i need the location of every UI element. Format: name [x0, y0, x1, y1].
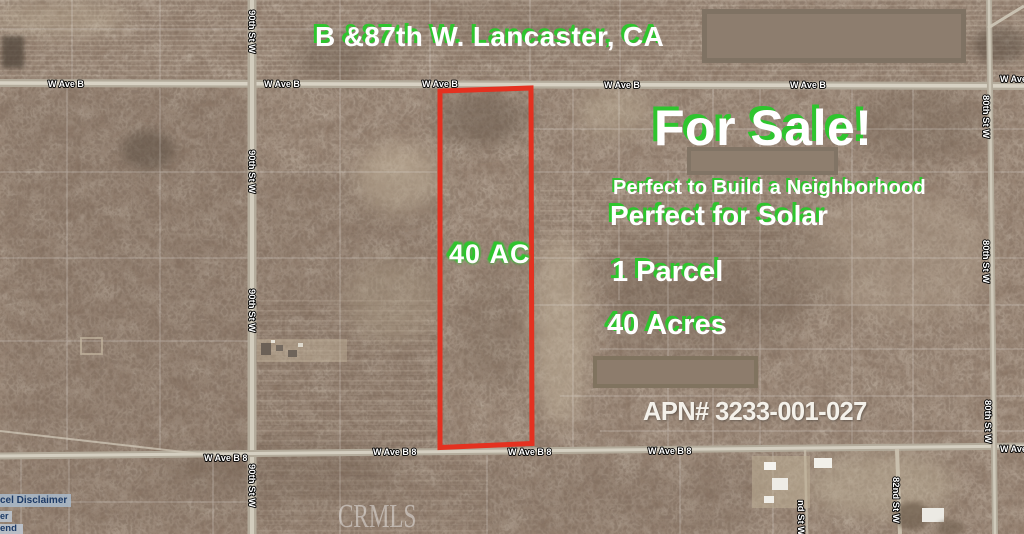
svg-text:90th St W: 90th St W — [246, 289, 257, 332]
svg-text:W Ave B: W Ave B — [48, 79, 84, 89]
svg-text:W Ave B: W Ave B — [604, 80, 640, 90]
svg-text:W Ave: W Ave — [1000, 74, 1024, 84]
svg-text:90th St W: 90th St W — [246, 10, 257, 53]
svg-text:W Ave B: W Ave B — [790, 80, 826, 90]
svg-text:W Ave B 8: W Ave B 8 — [373, 447, 416, 457]
svg-text:nd St W: nd St W — [795, 500, 806, 534]
svg-text:80th St W: 80th St W — [980, 240, 991, 283]
svg-text:82nd St W: 82nd St W — [890, 477, 901, 523]
svg-text:W Ave B 8: W Ave B 8 — [204, 453, 247, 463]
svg-text:W Ave B: W Ave B — [422, 79, 458, 89]
svg-text:W Ave: W Ave — [1000, 444, 1024, 454]
svg-text:90th St W: 90th St W — [246, 150, 257, 193]
svg-text:W Ave B 8: W Ave B 8 — [508, 447, 551, 457]
svg-text:W Ave B: W Ave B — [264, 79, 300, 89]
svg-text:80th St W: 80th St W — [980, 95, 991, 138]
svg-text:90th St W: 90th St W — [246, 464, 257, 507]
svg-text:W Ave B 8: W Ave B 8 — [648, 446, 691, 456]
svg-text:80th St W: 80th St W — [982, 400, 993, 443]
